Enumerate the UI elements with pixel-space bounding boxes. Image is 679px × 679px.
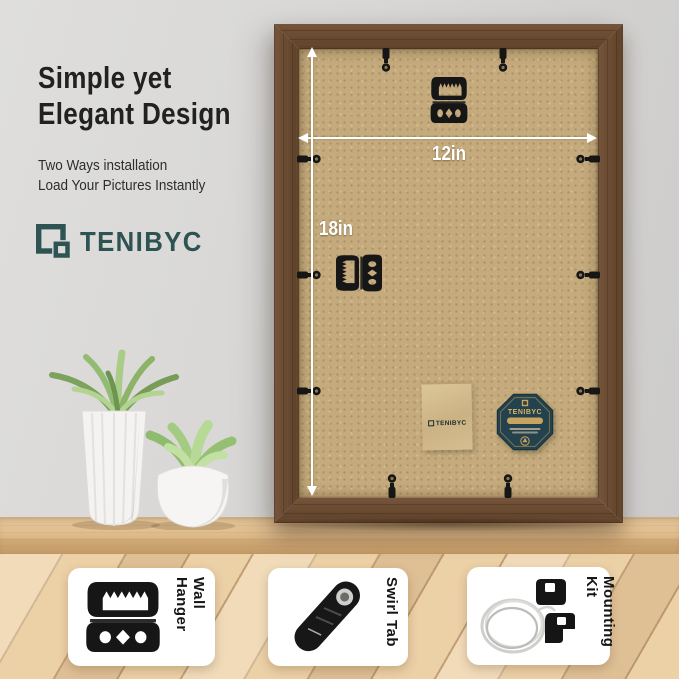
tall-ribbed-pot	[82, 411, 146, 526]
marketing-copy: Simple yet Elegant Design Two Ways insta…	[38, 60, 278, 196]
wall-hanger-photo	[72, 573, 173, 661]
pouch-brand-print: TENIBYC	[427, 396, 467, 451]
card-wall-hanger: Wall Hanger	[68, 568, 215, 666]
sawtooth-hanger-side	[336, 254, 382, 292]
subheadline-line1: Two Ways installation	[38, 156, 254, 176]
width-arrow-right	[587, 133, 597, 143]
card-mounting-kit: Mounting Kit	[467, 567, 610, 665]
subheadline-line2: Load Your Pictures Instantly	[38, 176, 254, 196]
width-dimension-line	[307, 137, 587, 139]
card-label: Swirl Tab	[383, 577, 400, 658]
pouch-logo-icon	[428, 420, 434, 426]
frame-rail-left	[274, 24, 299, 523]
subheadline: Two Ways installation Load Your Pictures…	[38, 156, 254, 196]
swirl-tab-top-left	[384, 48, 394, 72]
headline: Simple yet Elegant Design	[38, 60, 240, 132]
swirl-tab-icon	[285, 573, 369, 661]
tall-plant-leaves	[52, 353, 176, 413]
swirl-tab-right-1	[576, 151, 600, 169]
height-arrow-top	[307, 47, 317, 57]
card-label: Wall Hanger	[173, 577, 207, 658]
brand-wordmark: TENIBYC	[80, 226, 203, 258]
swirl-tab-photo	[272, 573, 383, 661]
headline-line2: Elegant Design	[38, 96, 240, 132]
potted-plants	[30, 345, 240, 530]
swirl-tab-right-3	[576, 383, 600, 401]
brand-logo: TENIBYC	[36, 224, 213, 260]
mounting-kit-icon	[471, 573, 583, 659]
swirl-tab-bottom-left	[384, 474, 394, 498]
headline-line1: Simple yet	[38, 60, 240, 96]
product-image: Simple yet Elegant Design Two Ways insta…	[0, 0, 679, 679]
pouch-brand-text: TENIBYC	[436, 419, 467, 427]
tenibyc-logo-icon	[36, 224, 72, 260]
height-dimension-label: 18in	[319, 218, 353, 241]
swirl-tab-bottom-right	[500, 474, 510, 498]
height-dimension-line	[311, 56, 313, 487]
width-arrow-left	[298, 133, 308, 143]
badge-brand-text: TENIBYC	[508, 409, 542, 416]
swirl-tab-left-2	[297, 267, 321, 285]
sawtooth-hanger-top	[430, 77, 468, 128]
mounting-kit-photo	[471, 572, 583, 660]
card-swirl-tab: Swirl Tab	[268, 568, 408, 666]
swirl-tab-left-3	[297, 383, 321, 401]
quality-badge: TENIBYC	[494, 391, 556, 453]
badge-gold-banner	[507, 418, 543, 425]
frame-rail-top	[274, 24, 623, 49]
card-label: Mounting Kit	[583, 576, 617, 657]
swirl-tab-right-2	[576, 267, 600, 285]
width-dimension-label: 12in	[432, 143, 466, 166]
accessory-pouch: TENIBYC	[421, 382, 472, 451]
frame-rail-bottom	[274, 498, 623, 523]
sawtooth-hanger-icon	[85, 582, 161, 652]
picture-frame-back: 12in 18in TENIBYC TENIBYC	[274, 24, 623, 523]
round-pot	[157, 466, 229, 527]
swirl-tab-left-1	[297, 151, 321, 169]
height-arrow-bottom	[307, 486, 317, 496]
swirl-tab-top-right	[501, 48, 511, 72]
frame-rail-right	[598, 24, 623, 523]
